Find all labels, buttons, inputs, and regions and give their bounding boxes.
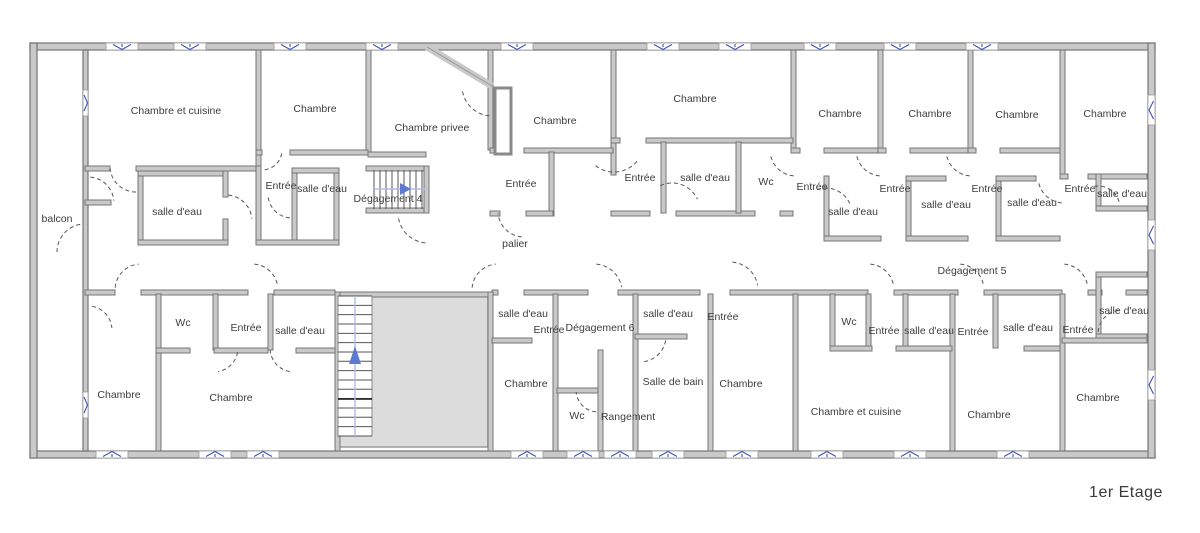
room-label: Chambre [533,115,576,127]
room-label: salle d'eau [1097,188,1147,200]
room-label: Chambre [995,109,1038,121]
room-label: Dégagement 5 [938,265,1007,277]
room-label: Salle de bain [643,376,704,388]
door-swing-arc [732,262,757,285]
door-swing-arc [110,168,136,192]
room-label: Entrée [797,181,828,193]
room-label: Chambre et cuisine [131,105,222,117]
labels-layer: Chambre et cuisineChambreChambre priveeC… [42,93,1150,423]
door-swing-arc [770,155,793,176]
room-label: salle d'eau [828,206,878,218]
room-label: Chambre [673,93,716,105]
room-label: Chambre privee [395,122,470,134]
room-label: Chambre [1076,392,1119,404]
room-label: Entrée [880,183,911,195]
room-label: Entrée [625,172,656,184]
floor-plan-page: Chambre et cuisineChambreChambre priveeC… [0,0,1200,533]
floor-title: 1er Etage [1056,484,1196,502]
room-label: Entrée [972,183,1003,195]
room-label: Chambre [209,392,252,404]
door-swing-arc [218,352,237,371]
room-label: Rangement [601,411,655,423]
door-swing-arc [228,195,252,219]
door-swing-arc [596,264,621,287]
room-label: Chambre [504,378,547,390]
room-label: Chambre et cuisine [811,406,902,418]
room-label: Entrée [708,311,739,323]
door-swing-arc [254,264,277,285]
room-label: salle d'eau [904,325,954,337]
room-label: salle d'eau [643,308,693,320]
room-label: Wc [841,316,856,328]
room-label: Wc [758,176,773,188]
room-label: Wc [175,317,190,329]
floor-plan: Chambre et cuisineChambreChambre priveeC… [0,0,1200,533]
room-label: Entrée [1063,324,1094,336]
room-label: Entrée [1065,183,1096,195]
room-label: Entrée [266,180,297,192]
room-label: salle d'eau [152,206,202,218]
room-label: Wc [569,410,584,422]
door-swing-arc [264,154,282,170]
room-label: salle d'eau [498,308,548,320]
door-swing-arc [57,224,83,252]
room-label: Entrée [231,322,262,334]
door-swing-arc [115,264,139,288]
room-label: Chambre [293,103,336,115]
room-label: Dégagement 4 [354,193,423,205]
room-label: salle d'eau [1003,322,1053,334]
room-label: salle d'eau [1007,197,1057,209]
room-label: Chambre [1083,108,1126,120]
room-label: Chambre [967,409,1010,421]
room-label: salle d'eau [921,199,971,211]
room-label: Entrée [869,325,900,337]
door-swing-arc [498,213,522,237]
room-label: Entrée [958,326,989,338]
room-label: salle d'eau [297,183,347,195]
door-swing-arc [399,218,426,243]
room-label: salle d'eau [275,325,325,337]
door-swing-arc [642,341,665,362]
room-label: balcon [42,213,73,225]
door-swing-arc [268,196,290,218]
door-swing-arc [270,350,290,372]
room-label: Chambre [818,108,861,120]
room-label: Chambre [908,108,951,120]
door-swing-arc [856,155,879,176]
door-swing-arc [472,264,496,288]
room-label: Entrée [506,178,537,190]
door-swing-arc [90,177,114,201]
main-staircase [338,296,372,436]
door-swing-arc [1064,264,1087,285]
door-swing-arc [576,392,596,412]
door-swing-arc [92,306,112,328]
doors-layer [57,91,1120,412]
room-label: salle d'eau [1099,305,1149,317]
door-swing-arc [946,155,969,176]
door-swing-arc [463,91,490,116]
door-swing-arc [870,264,893,285]
room-label: Chambre [719,378,762,390]
room-label: salle d'eau [680,172,730,184]
room-label: palier [502,238,528,250]
room-label: Dégagement 6 [566,322,635,334]
room-label: Chambre [97,389,140,401]
room-label: Entrée [534,324,565,336]
